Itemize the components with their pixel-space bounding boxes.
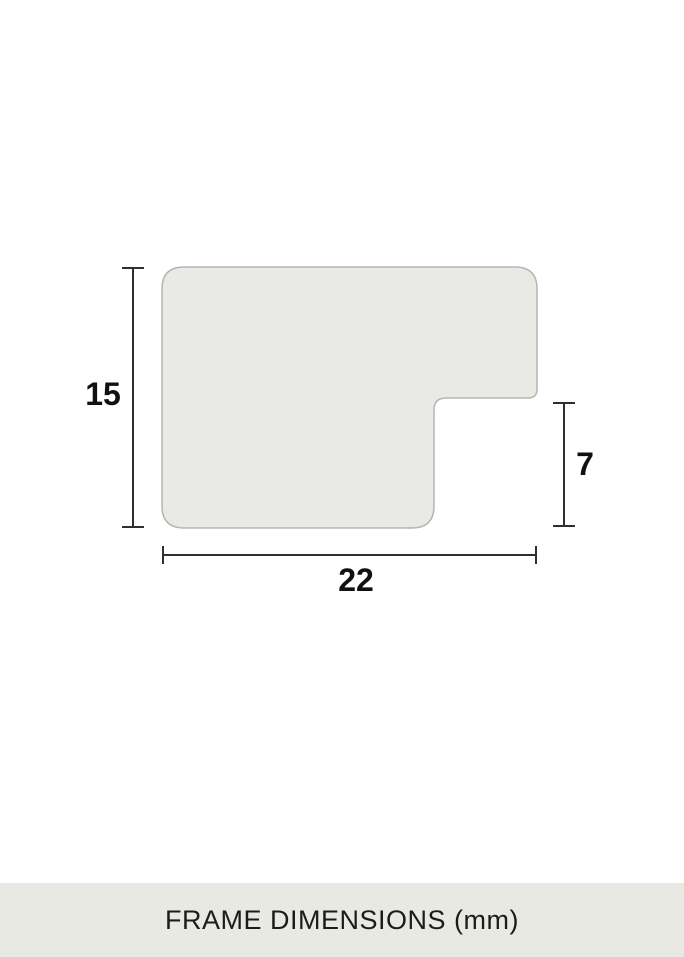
width-dimension-label: 22 (338, 564, 374, 596)
rabbet-dimension-line (553, 403, 575, 526)
caption-bar: FRAME DIMENSIONS (mm) (0, 883, 684, 957)
caption-text: FRAME DIMENSIONS (mm) (165, 905, 519, 936)
height-dimension-label: 15 (85, 378, 121, 410)
frame-dimensions-page: 15 7 22 FRAME DIMENSIONS (mm) (0, 0, 684, 957)
height-dimension-line (122, 268, 144, 527)
rabbet-dimension-label: 7 (576, 448, 594, 480)
frame-profile-shape (162, 267, 537, 528)
frame-profile-drawing (0, 0, 684, 880)
